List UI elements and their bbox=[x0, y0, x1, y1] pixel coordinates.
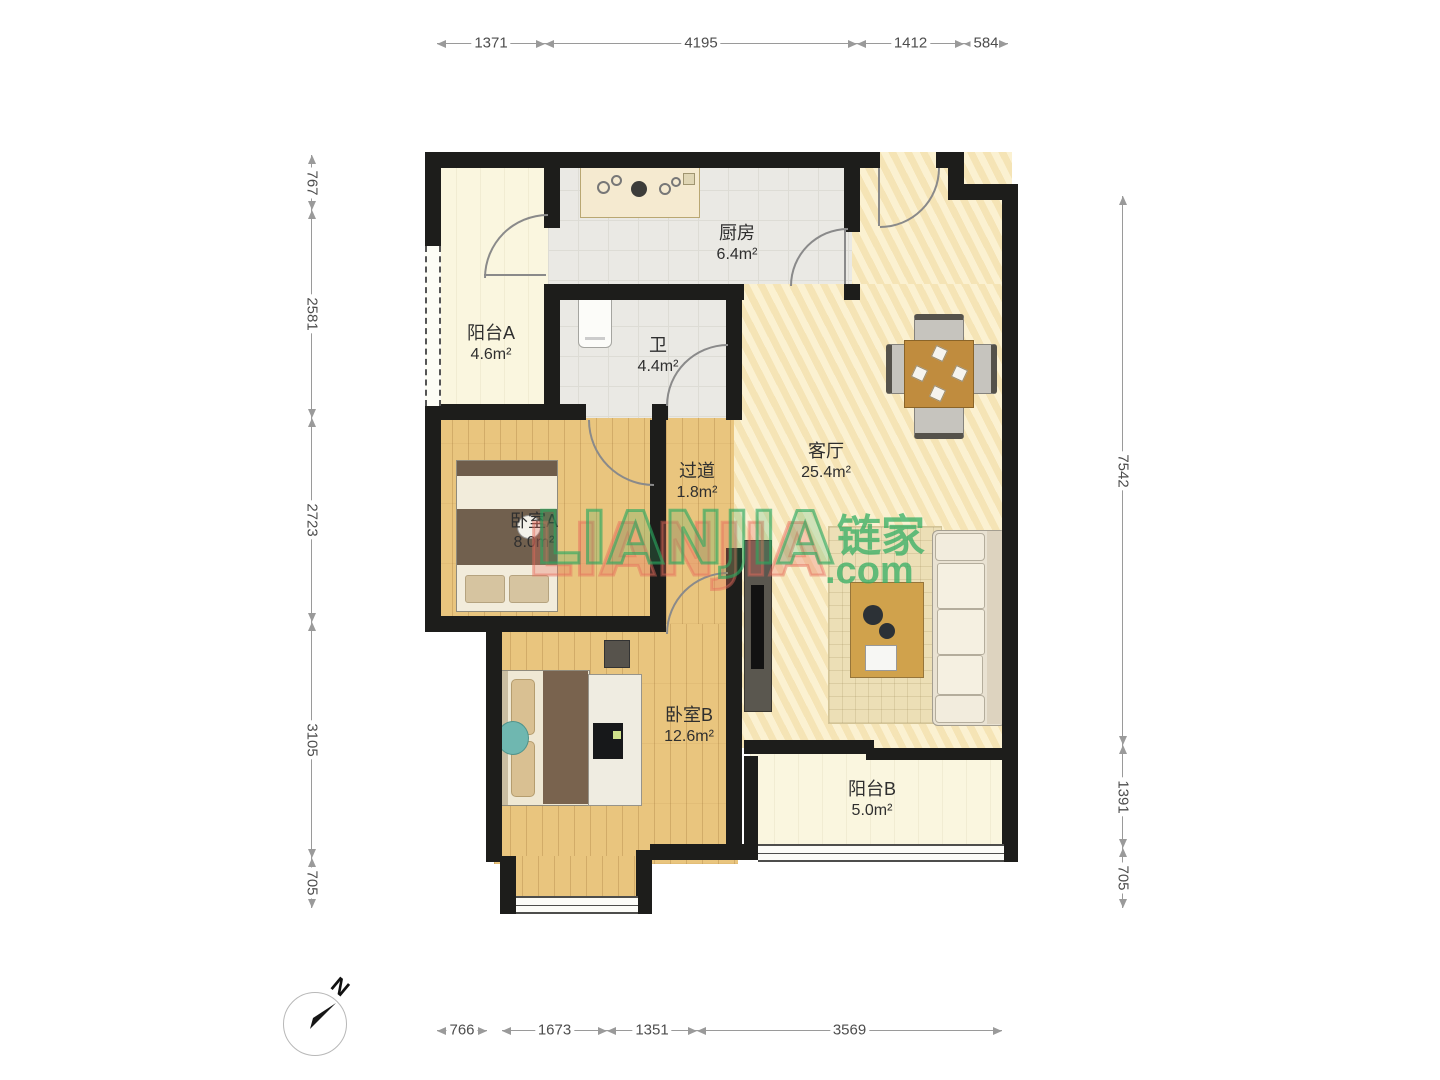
wall bbox=[726, 300, 742, 420]
dimension-top: 1412 bbox=[857, 43, 964, 44]
dimension-label: 1673 bbox=[535, 1022, 574, 1039]
bed-icon bbox=[498, 670, 590, 806]
wall bbox=[425, 616, 666, 632]
teapot-icon bbox=[879, 623, 895, 639]
dimension-right: 1391 bbox=[1122, 745, 1123, 848]
room-area: 1.8m² bbox=[677, 483, 718, 504]
wall bbox=[744, 740, 874, 754]
dimension-label: 766 bbox=[446, 1022, 477, 1039]
burner-icon bbox=[611, 175, 622, 186]
tv-icon bbox=[593, 723, 623, 759]
stove-counter-icon bbox=[580, 166, 700, 218]
bed-duvet bbox=[543, 671, 588, 804]
bed-pillow bbox=[465, 575, 505, 603]
wall bbox=[425, 152, 880, 168]
dimension-bottom: 766 bbox=[437, 1030, 487, 1031]
sink-icon bbox=[683, 173, 695, 185]
wall bbox=[425, 152, 441, 246]
coffee-table-icon bbox=[850, 582, 924, 678]
room-name: 客厅 bbox=[801, 440, 851, 463]
wall bbox=[726, 632, 742, 860]
room-name: 卧室A bbox=[510, 510, 558, 533]
room-area: 12.6m² bbox=[664, 727, 714, 748]
room-name: 卧室B bbox=[664, 704, 714, 727]
wall bbox=[652, 404, 668, 420]
room-area: 25.4m² bbox=[801, 463, 851, 484]
wall bbox=[486, 632, 502, 862]
dimension-right: 705 bbox=[1122, 848, 1123, 908]
room-label-balcony-a: 阳台A 4.6m² bbox=[467, 322, 515, 366]
wardrobe-icon bbox=[588, 674, 642, 806]
dimension-label: 3569 bbox=[830, 1022, 869, 1039]
plate-icon bbox=[951, 365, 968, 382]
sofa-armrest bbox=[935, 533, 985, 561]
sofa-cushion bbox=[937, 609, 985, 655]
dimension-label: 2581 bbox=[304, 294, 321, 333]
dimension-left: 2581 bbox=[311, 210, 312, 418]
teapot-icon bbox=[863, 605, 883, 625]
room-label-balcony-b: 阳台B 5.0m² bbox=[848, 778, 896, 822]
dimension-label: 767 bbox=[304, 167, 321, 198]
wall bbox=[425, 404, 586, 420]
dimension-left: 705 bbox=[311, 858, 312, 908]
burner-icon bbox=[631, 181, 647, 197]
dimension-label: 1371 bbox=[471, 35, 510, 52]
wall bbox=[844, 284, 860, 300]
door-leaf bbox=[844, 228, 846, 284]
sofa-cushion bbox=[937, 655, 983, 695]
tv-cabinet-icon bbox=[744, 540, 772, 712]
room-label-kitchen: 厨房 6.4m² bbox=[717, 222, 758, 266]
dimension-bottom: 1673 bbox=[502, 1030, 607, 1031]
water-heater-icon bbox=[578, 292, 612, 348]
wall bbox=[1002, 184, 1018, 862]
room-area: 4.4m² bbox=[638, 357, 679, 378]
room-name: 过道 bbox=[677, 460, 718, 483]
dimension-label: 1351 bbox=[632, 1022, 671, 1039]
balcony-a-window bbox=[425, 246, 441, 406]
burner-icon bbox=[659, 183, 671, 195]
dimension-label: 2723 bbox=[304, 500, 321, 539]
room-name: 卫 bbox=[638, 334, 679, 357]
tv-screen bbox=[751, 585, 764, 669]
bed-headboard bbox=[457, 461, 557, 476]
plate-icon bbox=[929, 385, 946, 402]
dimension-label: 1391 bbox=[1115, 777, 1132, 816]
floor-plan: 阳台A 4.6m² 厨房 6.4m² 卫 4.4m² 过道 1.8m² 客厅 2… bbox=[0, 0, 1440, 1080]
dimension-top: 1371 bbox=[437, 43, 545, 44]
burner-icon bbox=[597, 181, 610, 194]
wall bbox=[425, 404, 441, 632]
room-area: 6.4m² bbox=[717, 245, 758, 266]
room-name: 阳台A bbox=[467, 322, 515, 345]
sofa-armrest bbox=[935, 695, 985, 723]
dimension-top: 4195 bbox=[545, 43, 857, 44]
room-area: 5.0m² bbox=[848, 801, 896, 822]
dimension-label: 4195 bbox=[681, 35, 720, 52]
dimension-bottom: 3569 bbox=[697, 1030, 1002, 1031]
room-area: 8.0m² bbox=[510, 533, 558, 554]
wall bbox=[866, 748, 1006, 760]
dimension-left: 2723 bbox=[311, 418, 312, 622]
sofa-cushion bbox=[937, 563, 985, 609]
tray-icon bbox=[865, 645, 897, 671]
room-area: 4.6m² bbox=[467, 345, 515, 366]
bed-pillow bbox=[509, 575, 549, 603]
wall bbox=[844, 160, 860, 232]
dimension-label: 1412 bbox=[891, 35, 930, 52]
dimension-label: 705 bbox=[304, 867, 321, 898]
compass-needle-icon bbox=[284, 993, 346, 1055]
bedroom-b-window bbox=[516, 896, 638, 914]
wall bbox=[744, 756, 758, 860]
dimension-label: 584 bbox=[970, 35, 1001, 52]
wall bbox=[544, 284, 744, 300]
dimension-left: 3105 bbox=[311, 622, 312, 858]
dimension-label: 705 bbox=[1115, 862, 1132, 893]
dimension-label: 7542 bbox=[1115, 451, 1132, 490]
door-leaf bbox=[484, 274, 546, 276]
plate-icon bbox=[931, 345, 948, 362]
door-leaf bbox=[878, 168, 880, 226]
room-label-living: 客厅 25.4m² bbox=[801, 440, 851, 484]
wall bbox=[726, 548, 742, 632]
nightstand-icon bbox=[604, 640, 630, 668]
room-label-bedroom-b: 卧室B 12.6m² bbox=[664, 704, 714, 748]
room-label-hallway: 过道 1.8m² bbox=[677, 460, 718, 504]
dimension-label: 3105 bbox=[304, 720, 321, 759]
dimension-left: 767 bbox=[311, 155, 312, 210]
dimension-right: 7542 bbox=[1122, 196, 1123, 745]
room-name: 阳台B bbox=[848, 778, 896, 801]
room-label-bedroom-a: 卧室A 8.0m² bbox=[510, 510, 558, 554]
plate-icon bbox=[911, 365, 928, 382]
chair-icon bbox=[914, 404, 964, 439]
room-label-bathroom: 卫 4.4m² bbox=[638, 334, 679, 378]
sofa-icon bbox=[932, 530, 1006, 726]
balcony-b-window bbox=[758, 844, 1004, 862]
burner-icon bbox=[671, 177, 681, 187]
dimension-bottom: 1351 bbox=[607, 1030, 697, 1031]
wall bbox=[544, 284, 560, 416]
dimension-top: 584 bbox=[964, 43, 1008, 44]
tv-light bbox=[613, 731, 621, 739]
room-name: 厨房 bbox=[717, 222, 758, 245]
wall bbox=[500, 856, 516, 914]
dining-table-icon bbox=[904, 340, 974, 408]
balcony-a-floor bbox=[432, 160, 548, 418]
